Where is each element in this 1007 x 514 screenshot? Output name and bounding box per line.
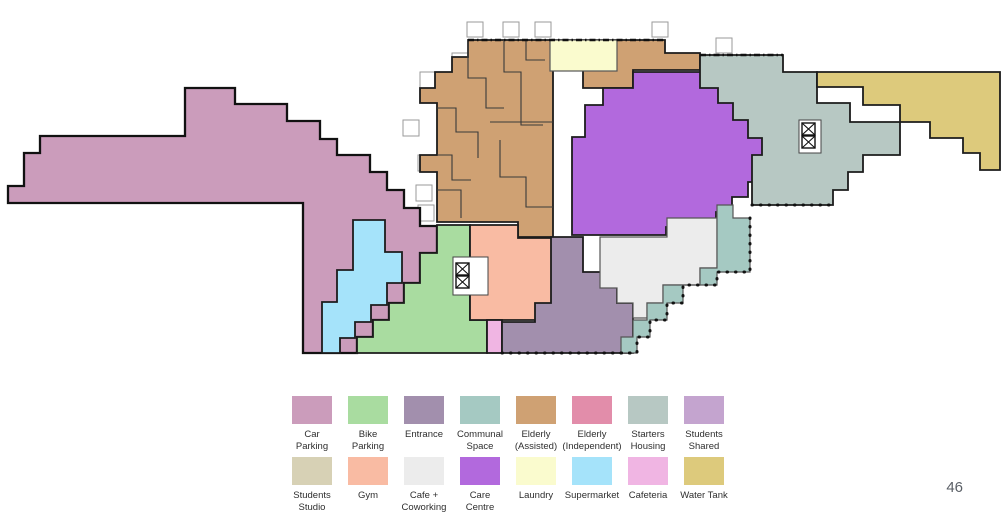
balcony-icon	[420, 72, 436, 88]
legend-item-waterTank: Water Tank	[676, 457, 732, 514]
legend-label: Care Centre	[466, 490, 495, 514]
legend-swatch-waterTank	[684, 457, 724, 485]
balcony-icon	[467, 22, 483, 37]
balcony-icon	[535, 22, 551, 37]
legend-item-cafeteria: Cafeteria	[620, 457, 676, 514]
legend-label: Entrance	[405, 429, 443, 441]
legend-label: Elderly (Assisted)	[515, 429, 557, 453]
legend-item-elderlyIndependent: Elderly (Independent)	[564, 396, 620, 453]
legend-row-1: Car ParkingBike ParkingEntranceCommunal …	[284, 396, 744, 453]
region-laundry	[550, 40, 617, 71]
legend-label: Laundry	[519, 490, 553, 502]
legend-swatch-studentsStudio	[292, 457, 332, 485]
legend-item-laundry: Laundry	[508, 457, 564, 514]
legend-item-studentsShared: Students Shared	[676, 396, 732, 453]
legend-swatch-cafeteria	[628, 457, 668, 485]
legend-swatch-elderlyAssisted	[516, 396, 556, 424]
legend-item-bikeParking: Bike Parking	[340, 396, 396, 453]
elevator-core	[799, 120, 821, 153]
legend-row-2: Students StudioGymCafe + CoworkingCare C…	[284, 457, 744, 514]
legend-swatch-elderlyIndependent	[572, 396, 612, 424]
balcony-icon	[652, 22, 668, 37]
legend-label: Bike Parking	[352, 429, 384, 453]
legend-label: Gym	[358, 490, 378, 502]
legend-swatch-carParking	[292, 396, 332, 424]
legend-label: Cafeteria	[629, 490, 668, 502]
legend-swatch-laundry	[516, 457, 556, 485]
legend-swatch-communalSpace	[460, 396, 500, 424]
legend-item-elderlyAssisted: Elderly (Assisted)	[508, 396, 564, 453]
legend-label: Car Parking	[296, 429, 328, 453]
legend-label: Water Tank	[680, 490, 728, 502]
balcony-icon	[416, 185, 432, 201]
page-number: 46	[946, 479, 963, 496]
legend-item-supermarket: Supermarket	[564, 457, 620, 514]
legend-swatch-entrance	[404, 396, 444, 424]
floor-plan	[0, 0, 1007, 385]
balcony-icon	[403, 120, 419, 136]
legend-label: Communal Space	[457, 429, 503, 453]
legend-swatch-cafeCoworking	[404, 457, 444, 485]
legend-swatch-startersHousing	[628, 396, 668, 424]
legend-label: Elderly (Independent)	[562, 429, 621, 453]
legend-item-gym: Gym	[340, 457, 396, 514]
legend-label: Starters Housing	[631, 429, 666, 453]
legend-item-careCentre: Care Centre	[452, 457, 508, 514]
legend-label: Students Studio	[293, 490, 331, 514]
balcony-icon	[716, 38, 732, 53]
legend-swatch-gym	[348, 457, 388, 485]
slide: { "page": { "number": "46" }, "colors": …	[0, 0, 1007, 508]
balcony-icon	[503, 22, 519, 37]
legend-label: Cafe + Coworking	[402, 490, 447, 514]
legend-swatch-bikeParking	[348, 396, 388, 424]
legend-swatch-careCentre	[460, 457, 500, 485]
legend-item-carParking: Car Parking	[284, 396, 340, 453]
legend-swatch-supermarket	[572, 457, 612, 485]
legend-item-communalSpace: Communal Space	[452, 396, 508, 453]
legend-item-entrance: Entrance	[396, 396, 452, 453]
legend-label: Students Shared	[685, 429, 723, 453]
region-cafeteria	[487, 320, 502, 353]
legend-label: Supermarket	[565, 490, 619, 502]
legend: Car ParkingBike ParkingEntranceCommunal …	[284, 396, 744, 514]
legend-swatch-studentsShared	[684, 396, 724, 424]
elevator-core	[453, 257, 488, 295]
floor-plan-svg	[0, 0, 1007, 385]
legend-item-studentsStudio: Students Studio	[284, 457, 340, 514]
legend-item-cafeCoworking: Cafe + Coworking	[396, 457, 452, 514]
legend-item-startersHousing: Starters Housing	[620, 396, 676, 453]
